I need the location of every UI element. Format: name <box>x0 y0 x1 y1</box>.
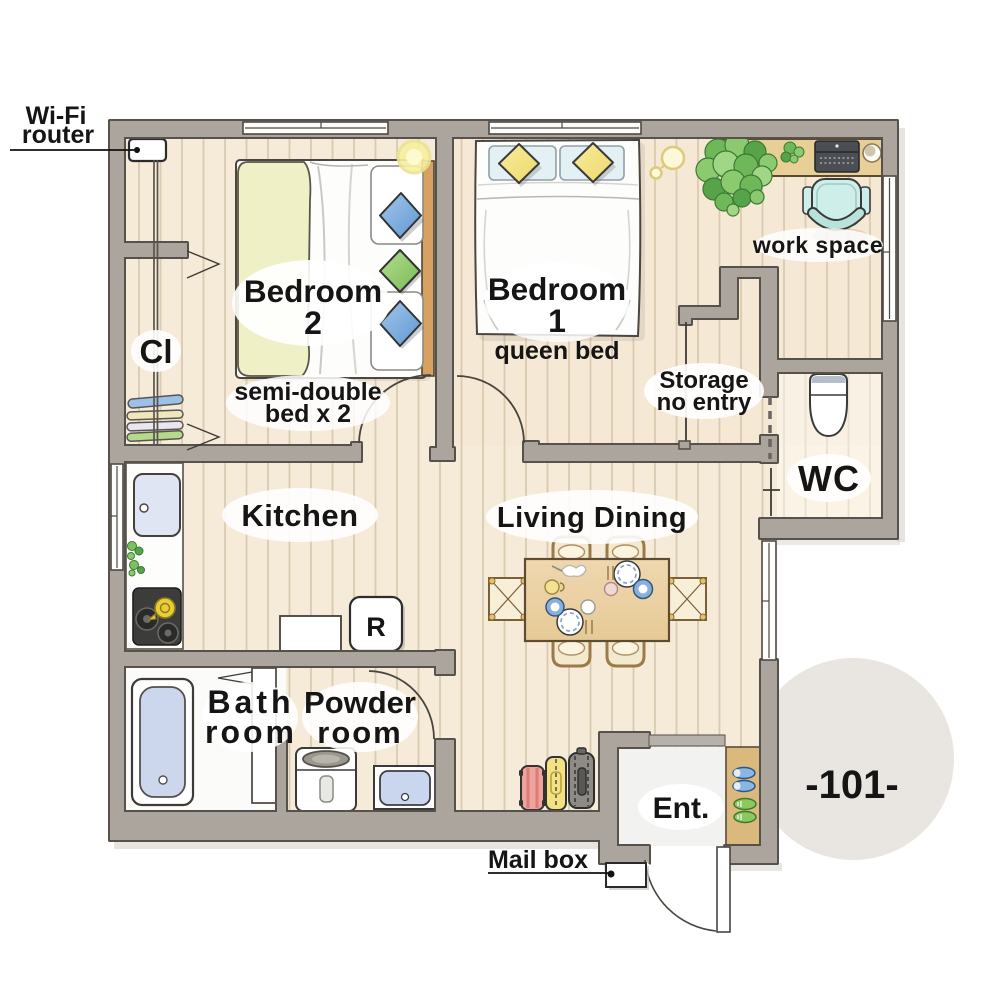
svg-text:Bedroom: Bedroom <box>244 273 382 309</box>
svg-text:Bedroom: Bedroom <box>488 271 626 307</box>
svg-text:Mail box: Mail box <box>488 846 588 874</box>
svg-text:WC: WC <box>798 458 860 499</box>
svg-text:room: room <box>317 715 403 750</box>
svg-text:router: router <box>22 121 95 149</box>
svg-text:-101-: -101- <box>805 763 898 807</box>
svg-text:Kitchen: Kitchen <box>241 498 358 533</box>
svg-text:bed x 2: bed x 2 <box>265 400 351 428</box>
svg-text:R: R <box>366 612 386 642</box>
svg-text:no entry: no entry <box>657 389 752 416</box>
svg-text:work space: work space <box>752 232 883 258</box>
svg-text:queen bed: queen bed <box>494 337 619 365</box>
svg-text:Living Dining: Living Dining <box>497 502 687 534</box>
svg-text:Ent.: Ent. <box>653 792 710 825</box>
svg-text:room: room <box>205 714 297 750</box>
svg-text:Cl: Cl <box>140 333 173 370</box>
svg-text:1: 1 <box>548 303 566 339</box>
svg-text:2: 2 <box>304 305 322 341</box>
